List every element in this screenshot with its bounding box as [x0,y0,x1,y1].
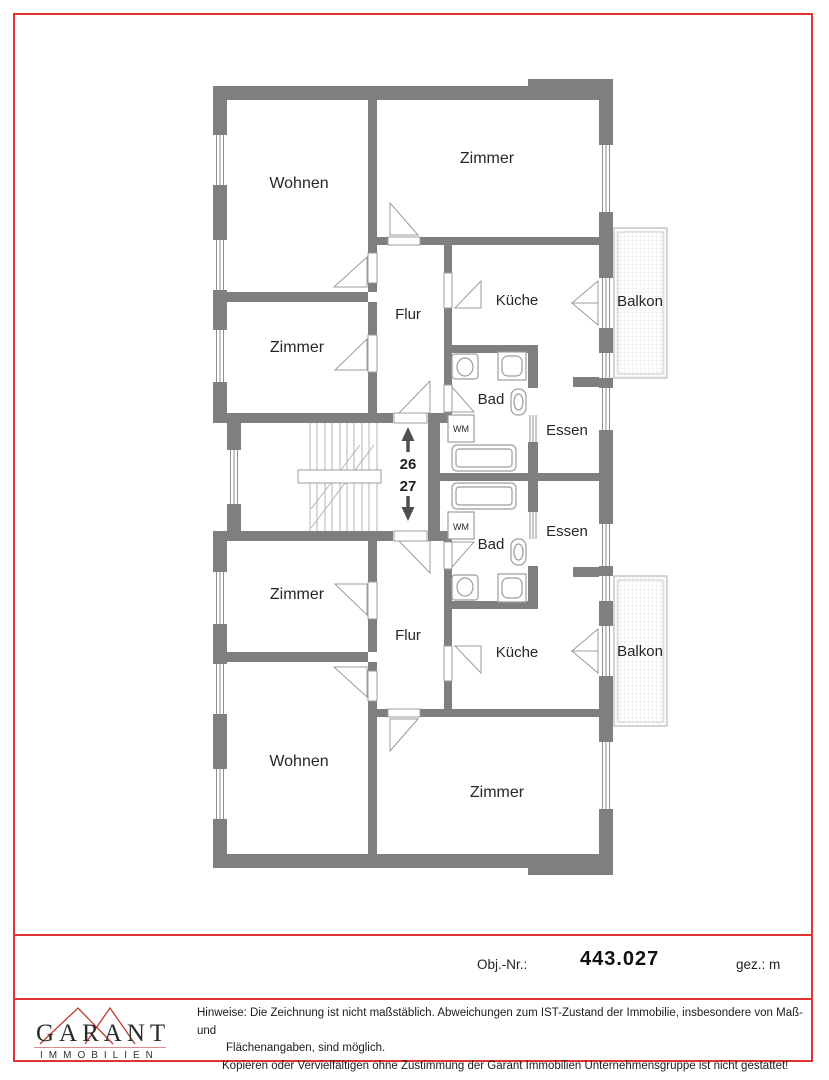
room-label-balkon-bottom: Balkon [617,643,663,660]
room-label-zimmer-bottom: Zimmer [470,784,525,801]
room-label-kueche-top: Küche [496,292,539,309]
room-label-bad-top: Bad [478,391,505,408]
room-label-wohnen-top: Wohnen [269,175,328,192]
object-number-value: 443.027 [580,948,659,971]
room-label-essen-bottom: Essen [546,523,588,540]
room-label-zimmer-left-bottom: Zimmer [270,586,325,603]
logo-brand-name: GARANT [36,1020,180,1048]
room-label-kueche-bottom: Küche [496,644,539,661]
footer-divider-top [13,934,813,936]
disclaimer-line-2: Flächenangaben, sind möglich. [226,1040,809,1058]
room-label-balkon-top: Balkon [617,293,663,310]
object-number-label: Obj.-Nr.: [477,957,527,972]
floor-plan-svg: 26 27 Wohnen Zimmer Zimmer Flur Küche Ba… [0,0,829,1080]
room-label-zimmer-left-top: Zimmer [270,339,325,356]
stair-number-down: 27 [400,478,417,495]
disclaimer-line-1: Hinweise: Die Zeichnung ist nicht maßstä… [197,1005,809,1040]
room-label-flur-top: Flur [395,306,421,323]
disclaimer-line-3: Kopieren oder Vervielfältigen ohne Zusti… [222,1058,809,1076]
apartment-bottom-geometry [213,477,667,875]
room-label-zimmer-top: Zimmer [460,150,515,167]
room-label-essen-top: Essen [546,422,588,439]
garant-logo: GARANT IMMOBILIEN [30,1003,180,1061]
disclaimer-text: Hinweise: Die Zeichnung ist nicht maßstä… [197,1005,809,1075]
room-label-flur-bottom: Flur [395,627,421,644]
stair-number-up: 26 [400,456,417,473]
page: 26 27 Wohnen Zimmer Zimmer Flur Küche Ba… [0,0,829,1080]
room-label-wohnen-bottom: Wohnen [269,753,328,770]
wm-label-bottom: WM [453,522,469,532]
logo-underline [34,1047,166,1048]
drawn-by-label: gez.: m [736,957,780,972]
room-label-bad-bottom: Bad [478,536,505,553]
logo-brand-subtitle: IMMOBILIEN [40,1050,159,1061]
footer-divider-bottom [13,998,813,1000]
wm-label-top: WM [453,424,469,434]
apartment-top-geometry [213,79,667,477]
